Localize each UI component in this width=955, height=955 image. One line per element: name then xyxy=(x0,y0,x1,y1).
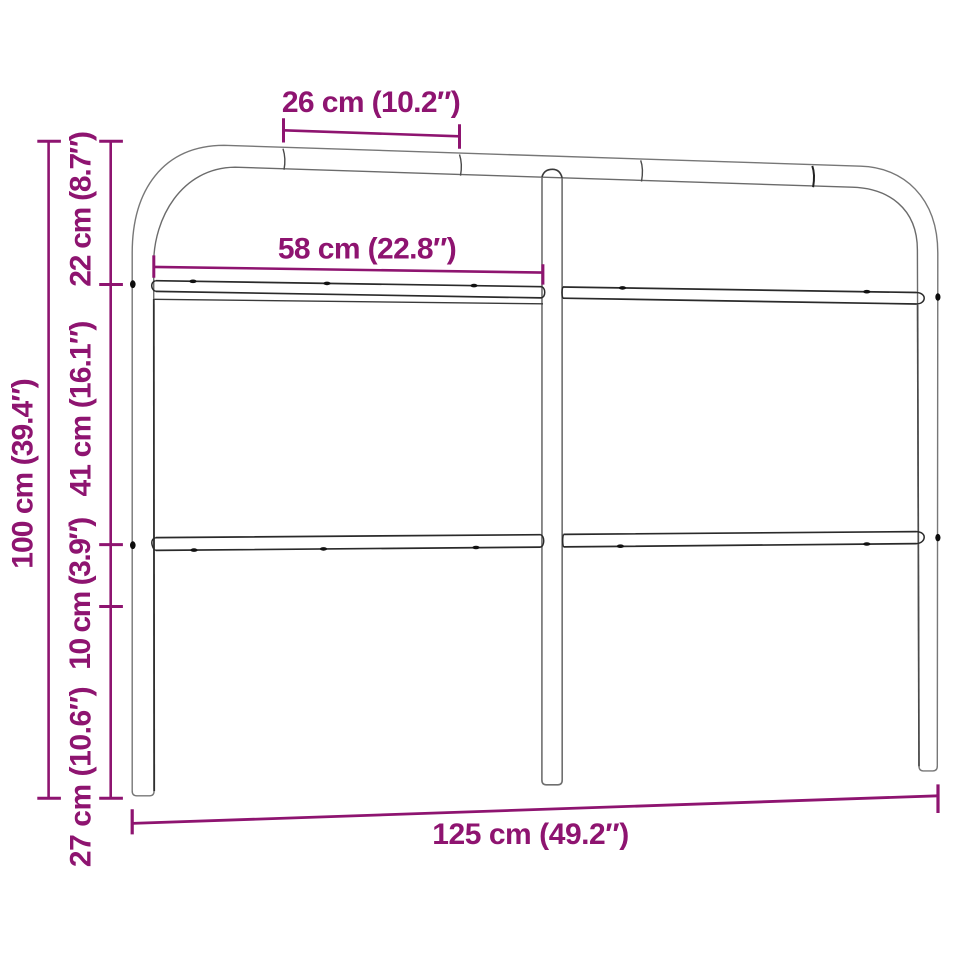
svg-text:10 cm (3.9″): 10 cm (3.9″) xyxy=(64,518,97,670)
svg-text:58 cm (22.8″): 58 cm (22.8″) xyxy=(278,233,456,266)
svg-text:22 cm (8.7″): 22 cm (8.7″) xyxy=(65,132,98,287)
svg-text:41 cm (16.1″): 41 cm (16.1″) xyxy=(65,321,98,496)
svg-text:125 cm (49.2″): 125 cm (49.2″) xyxy=(432,818,629,851)
svg-text:27 cm (10.6″): 27 cm (10.6″) xyxy=(65,687,98,867)
svg-text:100 cm (39.4″): 100 cm (39.4″) xyxy=(7,379,40,569)
svg-text:26 cm (10.2″): 26 cm (10.2″) xyxy=(282,86,460,119)
